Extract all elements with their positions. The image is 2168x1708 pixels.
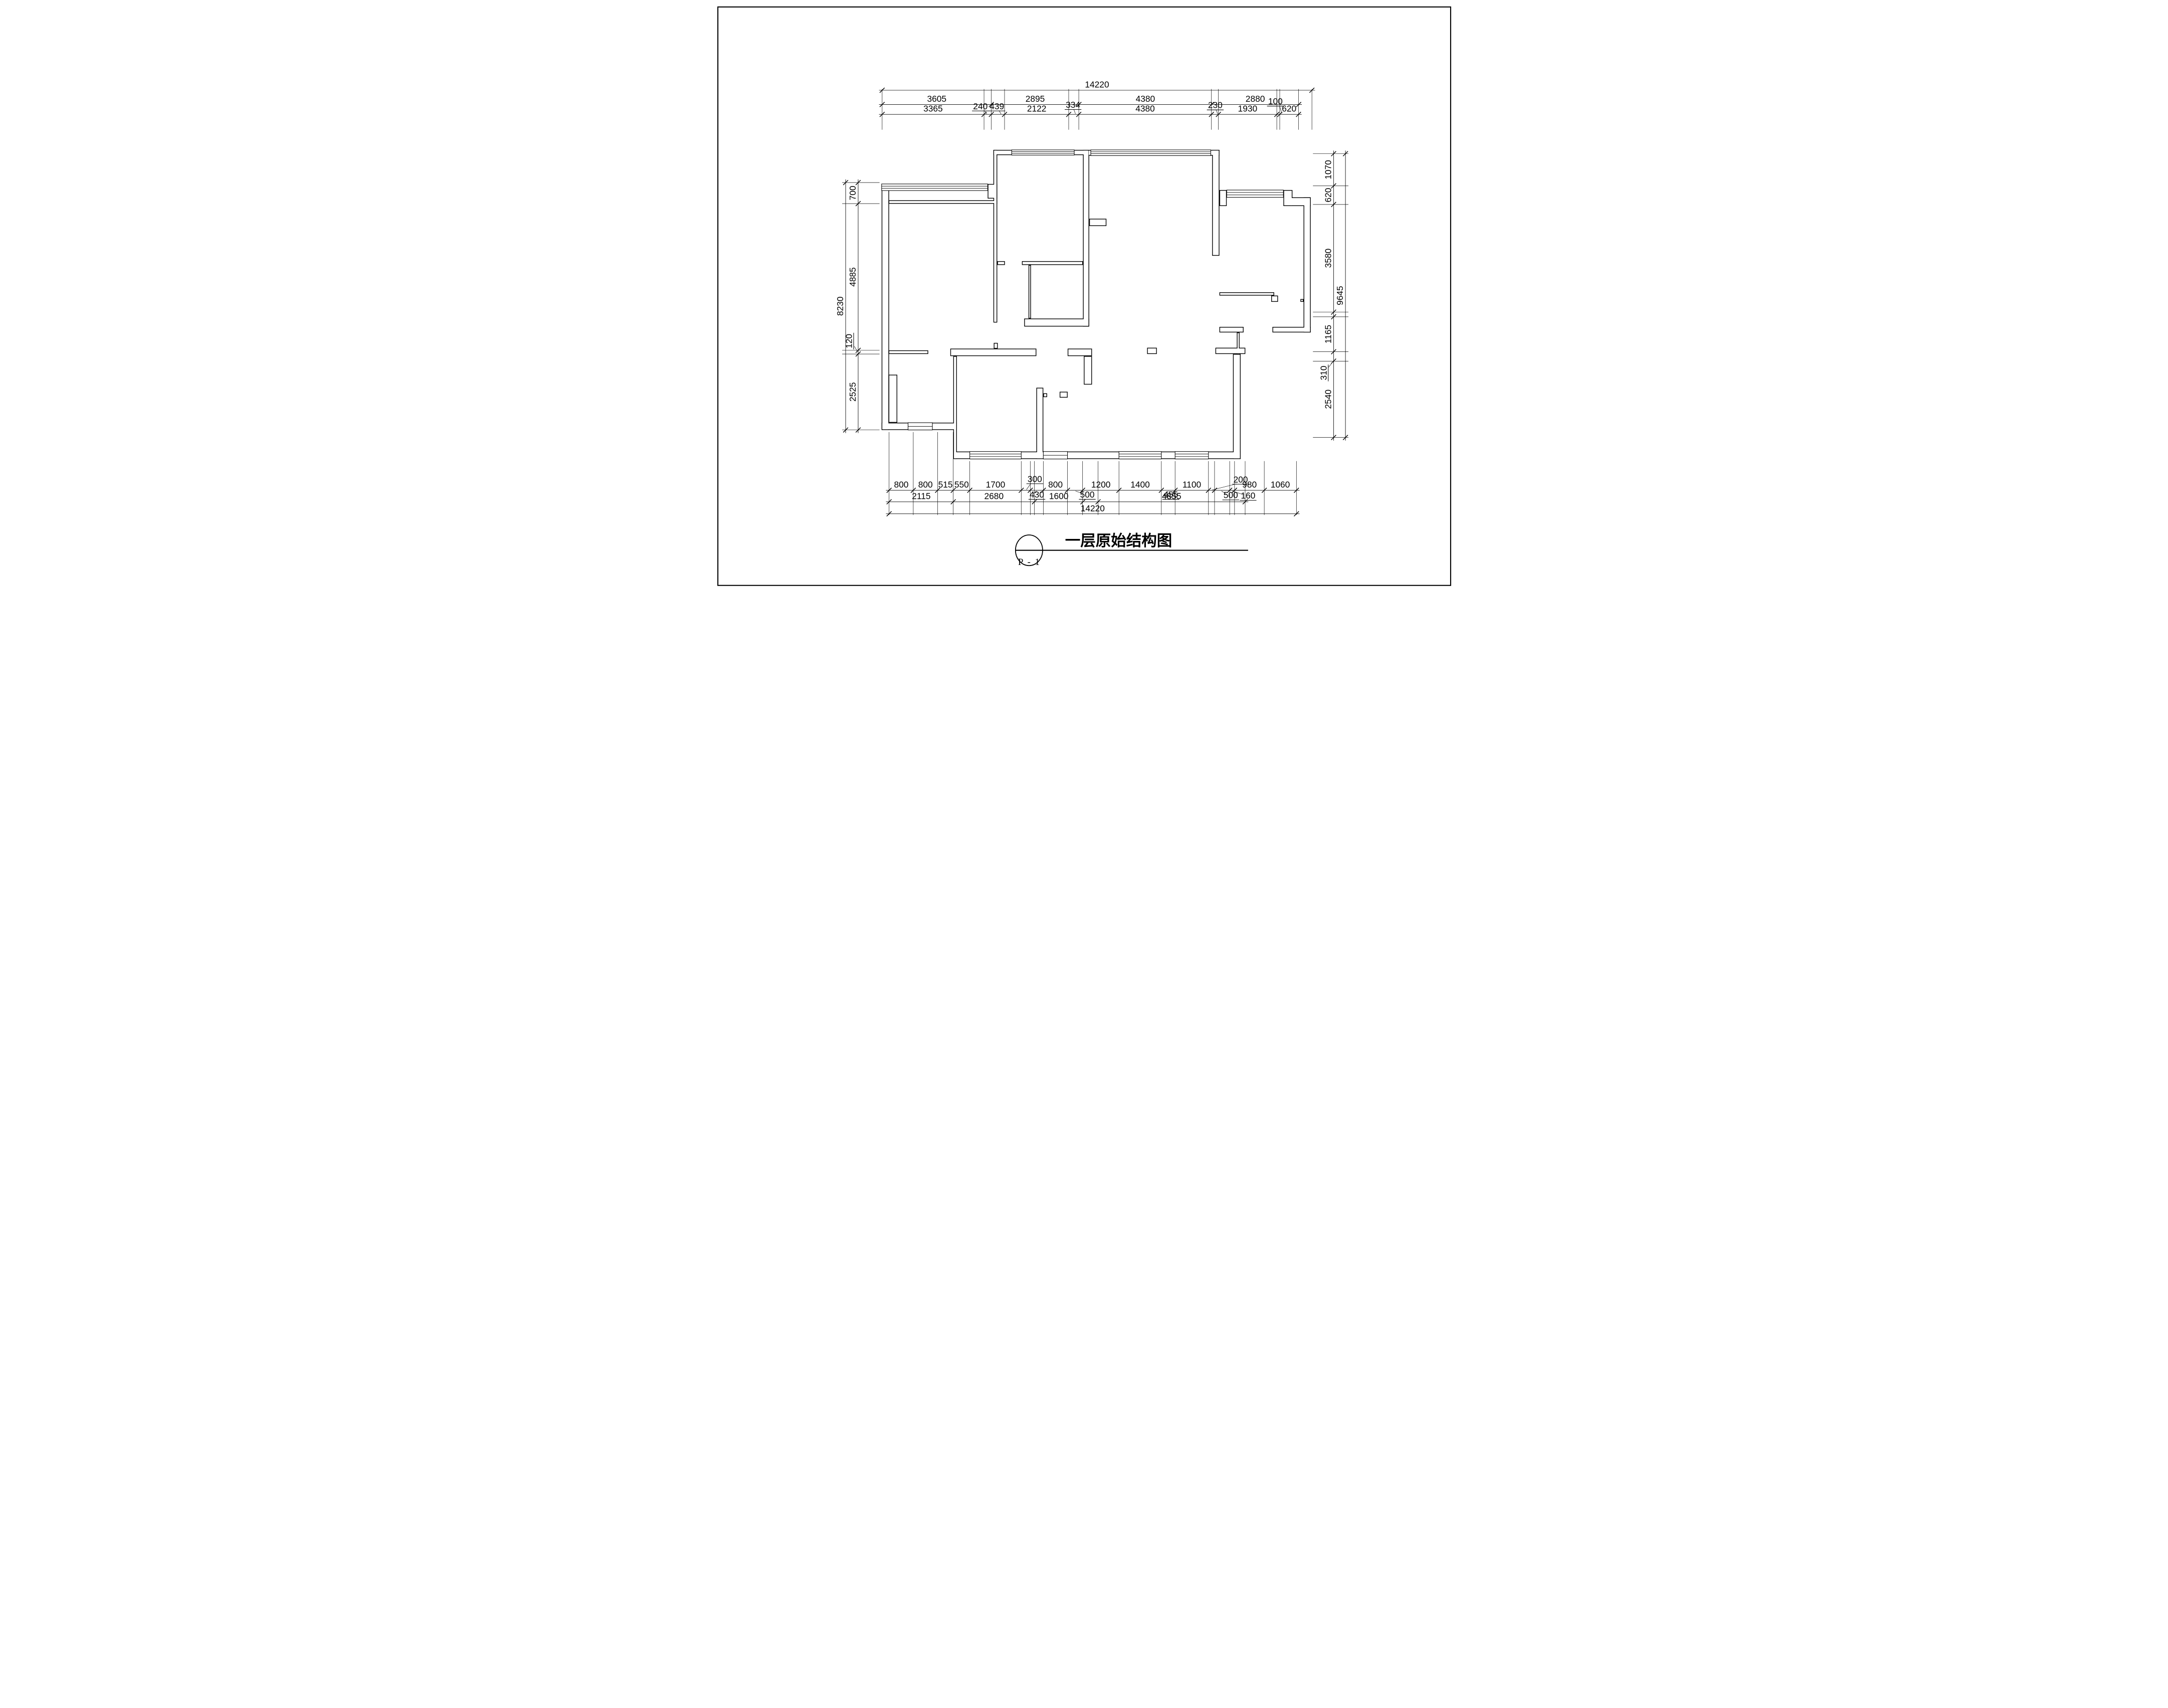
dimension-label: 800 (894, 479, 908, 489)
dimension-label: 550 (954, 479, 968, 489)
dimension-label: 14220 (1085, 79, 1109, 89)
wall-core (889, 201, 997, 203)
wall-core (1044, 394, 1046, 397)
dimension-label: 500 (1223, 490, 1238, 500)
dimension-label: 2680 (984, 491, 1004, 501)
dimension-label: 620 (1282, 104, 1296, 114)
wall-core (1220, 293, 1273, 295)
dimension-label: 1165 (1323, 325, 1333, 343)
wall-core (1213, 150, 1219, 255)
wall-core (994, 150, 997, 322)
leader-line (1074, 109, 1075, 114)
dimension-label: 800 (1048, 479, 1063, 489)
floor-plan-svg: 1422036052895438028803365212243801930620… (708, 0, 1460, 593)
wall-core (1273, 327, 1310, 331)
window-opening (1175, 452, 1209, 459)
wall-core (1301, 300, 1302, 301)
wall-core (1025, 319, 1088, 326)
wall-core (994, 343, 997, 348)
window-opening (969, 452, 1021, 459)
dimension-label: 2880 (1245, 94, 1265, 104)
dimension-label: 200 (1233, 474, 1248, 484)
dimension-label: 334 (1066, 100, 1080, 110)
title-block: 一层原始结构图 P - 1 (1015, 532, 1248, 567)
wall-core (1084, 357, 1091, 384)
dimension-label: 2115 (912, 491, 930, 501)
wall-core (1029, 266, 1030, 318)
wall-core (889, 351, 927, 353)
window-opening (1012, 150, 1074, 155)
dimension-label: 430 (1030, 490, 1044, 500)
dimension-label: 4380 (1135, 94, 1155, 104)
wall-core (1037, 389, 1042, 458)
dimension-label: 515 (938, 479, 952, 489)
window-opening (1227, 190, 1283, 198)
dimension-label: 160 (1241, 491, 1255, 501)
title-tag-label: P - 1 (1018, 557, 1041, 567)
drawing-title: 一层原始结构图 (1065, 532, 1172, 549)
dimension-label: 4855 (1161, 491, 1181, 501)
wall-core (882, 184, 888, 429)
dimension-label: 100 (1268, 96, 1282, 106)
wall-core (1220, 191, 1226, 205)
wall-core (1060, 393, 1067, 397)
dimension-label: 300 (1027, 474, 1042, 484)
wall-core (951, 349, 1036, 355)
dimension-label: 1070 (1323, 160, 1333, 179)
wall-core (998, 262, 1004, 264)
wall-core (954, 357, 956, 459)
dimension-label: 8230 (835, 296, 845, 316)
wall-core (1023, 262, 1082, 264)
dimension-label: 2122 (1027, 104, 1046, 114)
wall-core (1234, 355, 1240, 459)
wall-core (1147, 348, 1156, 353)
window-opening (1091, 150, 1211, 155)
dimension-label: 230 (1208, 100, 1222, 110)
window-opening (1119, 452, 1161, 459)
dimension-label: 1600 (1049, 491, 1068, 501)
dimension-label: 2525 (848, 382, 858, 402)
dimension-label: 500 (1080, 490, 1094, 500)
leader-line (854, 346, 857, 351)
dimension-label: 9645 (1335, 286, 1345, 305)
dimension-label: 3605 (927, 94, 946, 104)
dimension-label: 700 (848, 186, 858, 201)
dimension-label: 1200 (1091, 479, 1110, 489)
dimension-label: 2540 (1323, 390, 1333, 409)
dimension-label: 439 (990, 101, 1004, 111)
dimension-label: 240 (973, 101, 988, 111)
dimension-label: 1400 (1130, 479, 1150, 489)
dimension-label: 3365 (923, 104, 943, 114)
wall-core (1068, 349, 1091, 355)
wall-core (1220, 327, 1243, 331)
wall-core (1216, 348, 1245, 353)
dimension-label: 1100 (1182, 479, 1201, 489)
leader-line (1212, 484, 1237, 490)
dimension-label: 620 (1323, 188, 1333, 203)
dimension-label: 1060 (1270, 479, 1290, 489)
wall-core (1272, 296, 1277, 301)
dimension-label: 4885 (848, 267, 858, 287)
wall-core (1304, 198, 1309, 332)
leader-line (1216, 109, 1217, 114)
dimension-label: 1930 (1238, 104, 1257, 114)
wall-core (1083, 150, 1088, 326)
wall-core (1090, 220, 1106, 226)
dimension-layer: 1422036052895438028803365212243801930620… (835, 79, 1348, 516)
window-opening (881, 184, 988, 191)
dimension-label: 120 (844, 334, 854, 348)
dimension-label: 1700 (986, 479, 1005, 489)
dimension-label: 3580 (1323, 249, 1333, 268)
dimension-label: 800 (918, 479, 932, 489)
dimension-label: 4380 (1135, 104, 1155, 114)
dimension-label: 14220 (1080, 503, 1104, 513)
drawing-sheet: 1422036052895438028803365212243801930620… (708, 0, 1460, 593)
dimension-label: 310 (1318, 365, 1328, 380)
dimension-label: 2895 (1025, 94, 1045, 104)
leader-line (1328, 362, 1332, 367)
wall-core (889, 375, 897, 422)
